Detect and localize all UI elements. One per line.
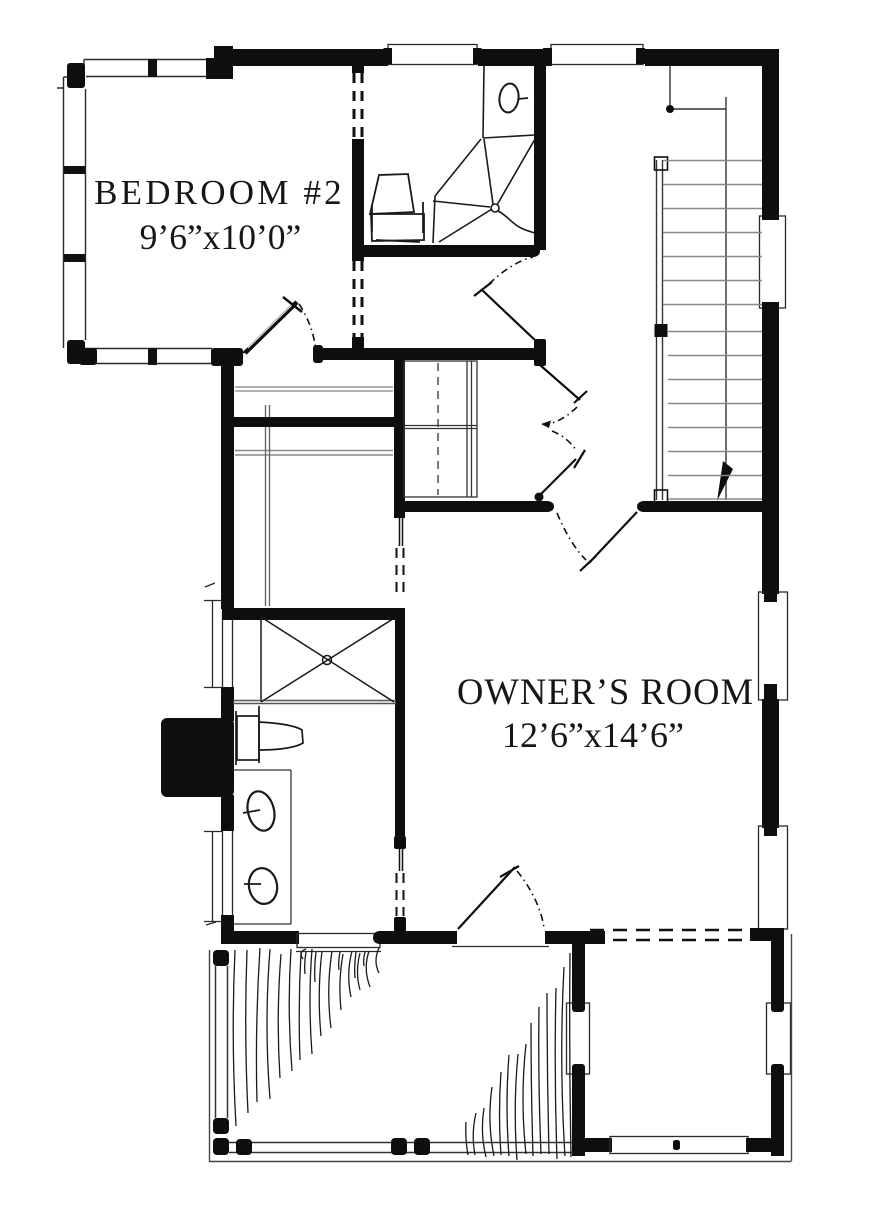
svg-text:BEDROOM #2: BEDROOM #2 [94, 173, 345, 212]
svg-text:OWNER’S ROOM: OWNER’S ROOM [457, 671, 754, 712]
svg-text:9’6”x10’0”: 9’6”x10’0” [140, 217, 302, 257]
svg-text:12’6”x14’6”: 12’6”x14’6” [502, 715, 684, 755]
